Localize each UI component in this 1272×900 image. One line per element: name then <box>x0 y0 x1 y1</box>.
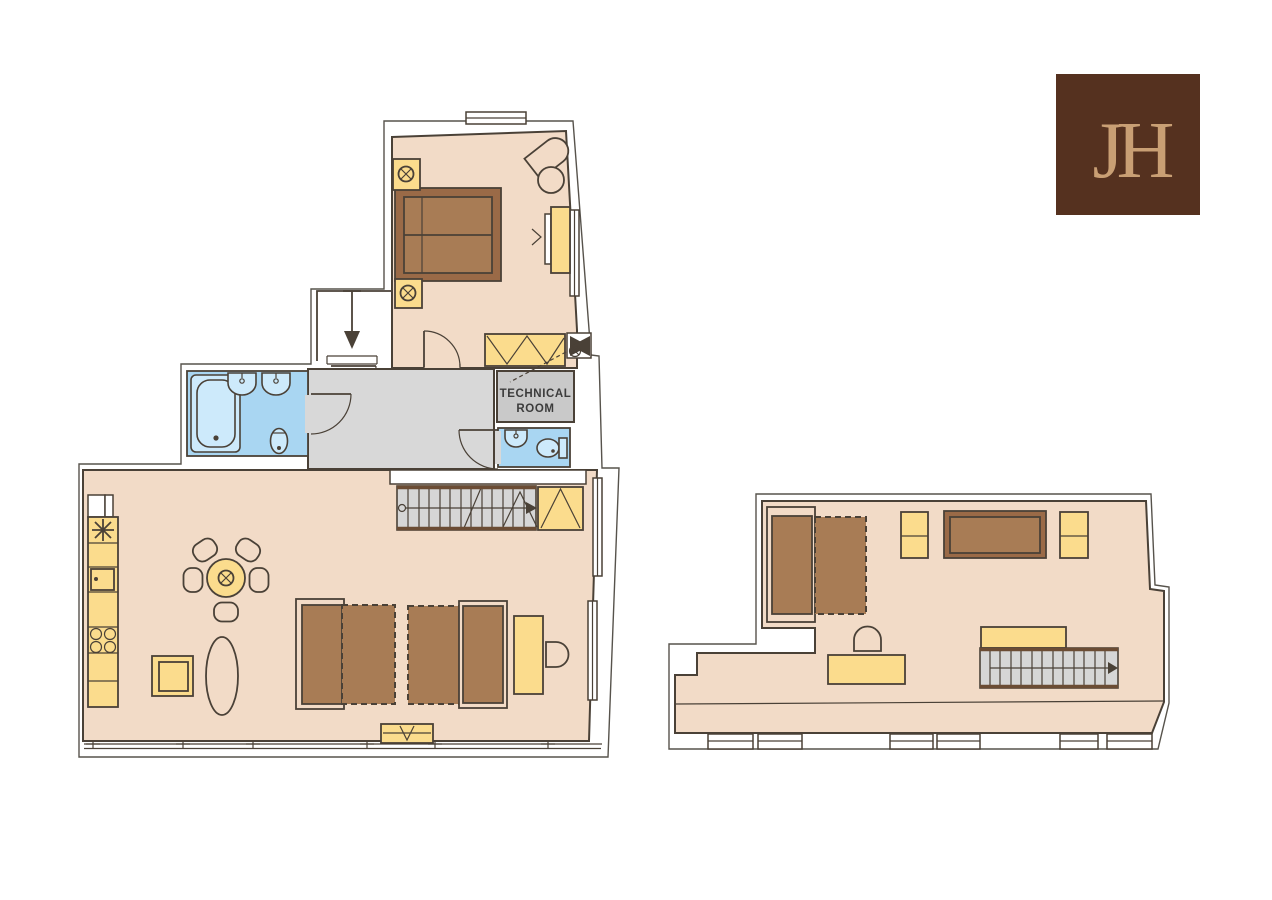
dining-chair <box>250 568 269 592</box>
technical-room: TECHNICAL ROOM <box>497 371 574 422</box>
upper-desk-chair <box>854 627 881 652</box>
window-mullions <box>86 741 555 749</box>
staircase-ground <box>397 486 537 530</box>
dining-chair <box>214 603 238 622</box>
entry-arrow-icon <box>343 291 361 349</box>
upper-cabinet-left <box>901 512 928 558</box>
ground-floor-plan: TECHNICAL ROOM <box>79 112 619 757</box>
extractor-star-icon <box>92 519 114 541</box>
brand-monogram: JH <box>1093 111 1168 191</box>
stair-wall <box>390 470 586 484</box>
nightstand-bottom <box>395 279 422 308</box>
sink <box>228 373 256 395</box>
living-window-right-upper <box>593 478 602 576</box>
bedroom-side-table <box>538 167 564 193</box>
double-bed <box>395 188 501 281</box>
technical-room-label: TECHNICAL <box>500 388 572 400</box>
sink <box>262 373 290 395</box>
bedroom-wardrobe <box>485 334 565 366</box>
bedroom <box>392 112 579 372</box>
stair-wardrobe <box>538 487 583 530</box>
kitchen-counter <box>88 517 118 707</box>
upper-floor-plan <box>669 494 1169 749</box>
nightstand-top <box>393 159 420 190</box>
dining-chair <box>184 568 203 592</box>
brand-logo: JH <box>1056 74 1200 215</box>
upper-sofa-bed <box>767 507 866 622</box>
sofa-bed-right <box>408 601 507 708</box>
fridge <box>88 495 105 517</box>
technical-room-label: ROOM <box>516 403 554 415</box>
living-armchair <box>152 656 193 696</box>
upper-windows <box>708 734 1152 749</box>
wc-sink <box>505 430 527 447</box>
floor-vase <box>206 637 238 715</box>
staircase-upper <box>980 648 1118 688</box>
tv-sideboard <box>381 724 433 743</box>
wc-toilet <box>537 438 567 458</box>
toilet <box>271 429 288 454</box>
sofa-bed-left <box>296 599 395 709</box>
hallway <box>308 369 494 469</box>
living-window-right-lower <box>588 601 597 700</box>
window-wall <box>84 741 602 749</box>
desk-chair <box>546 642 569 667</box>
upper-stair-storage <box>981 627 1066 648</box>
upper-sofa <box>944 511 1046 558</box>
kitchen <box>88 495 118 707</box>
upper-cabinet-right <box>1060 512 1088 558</box>
